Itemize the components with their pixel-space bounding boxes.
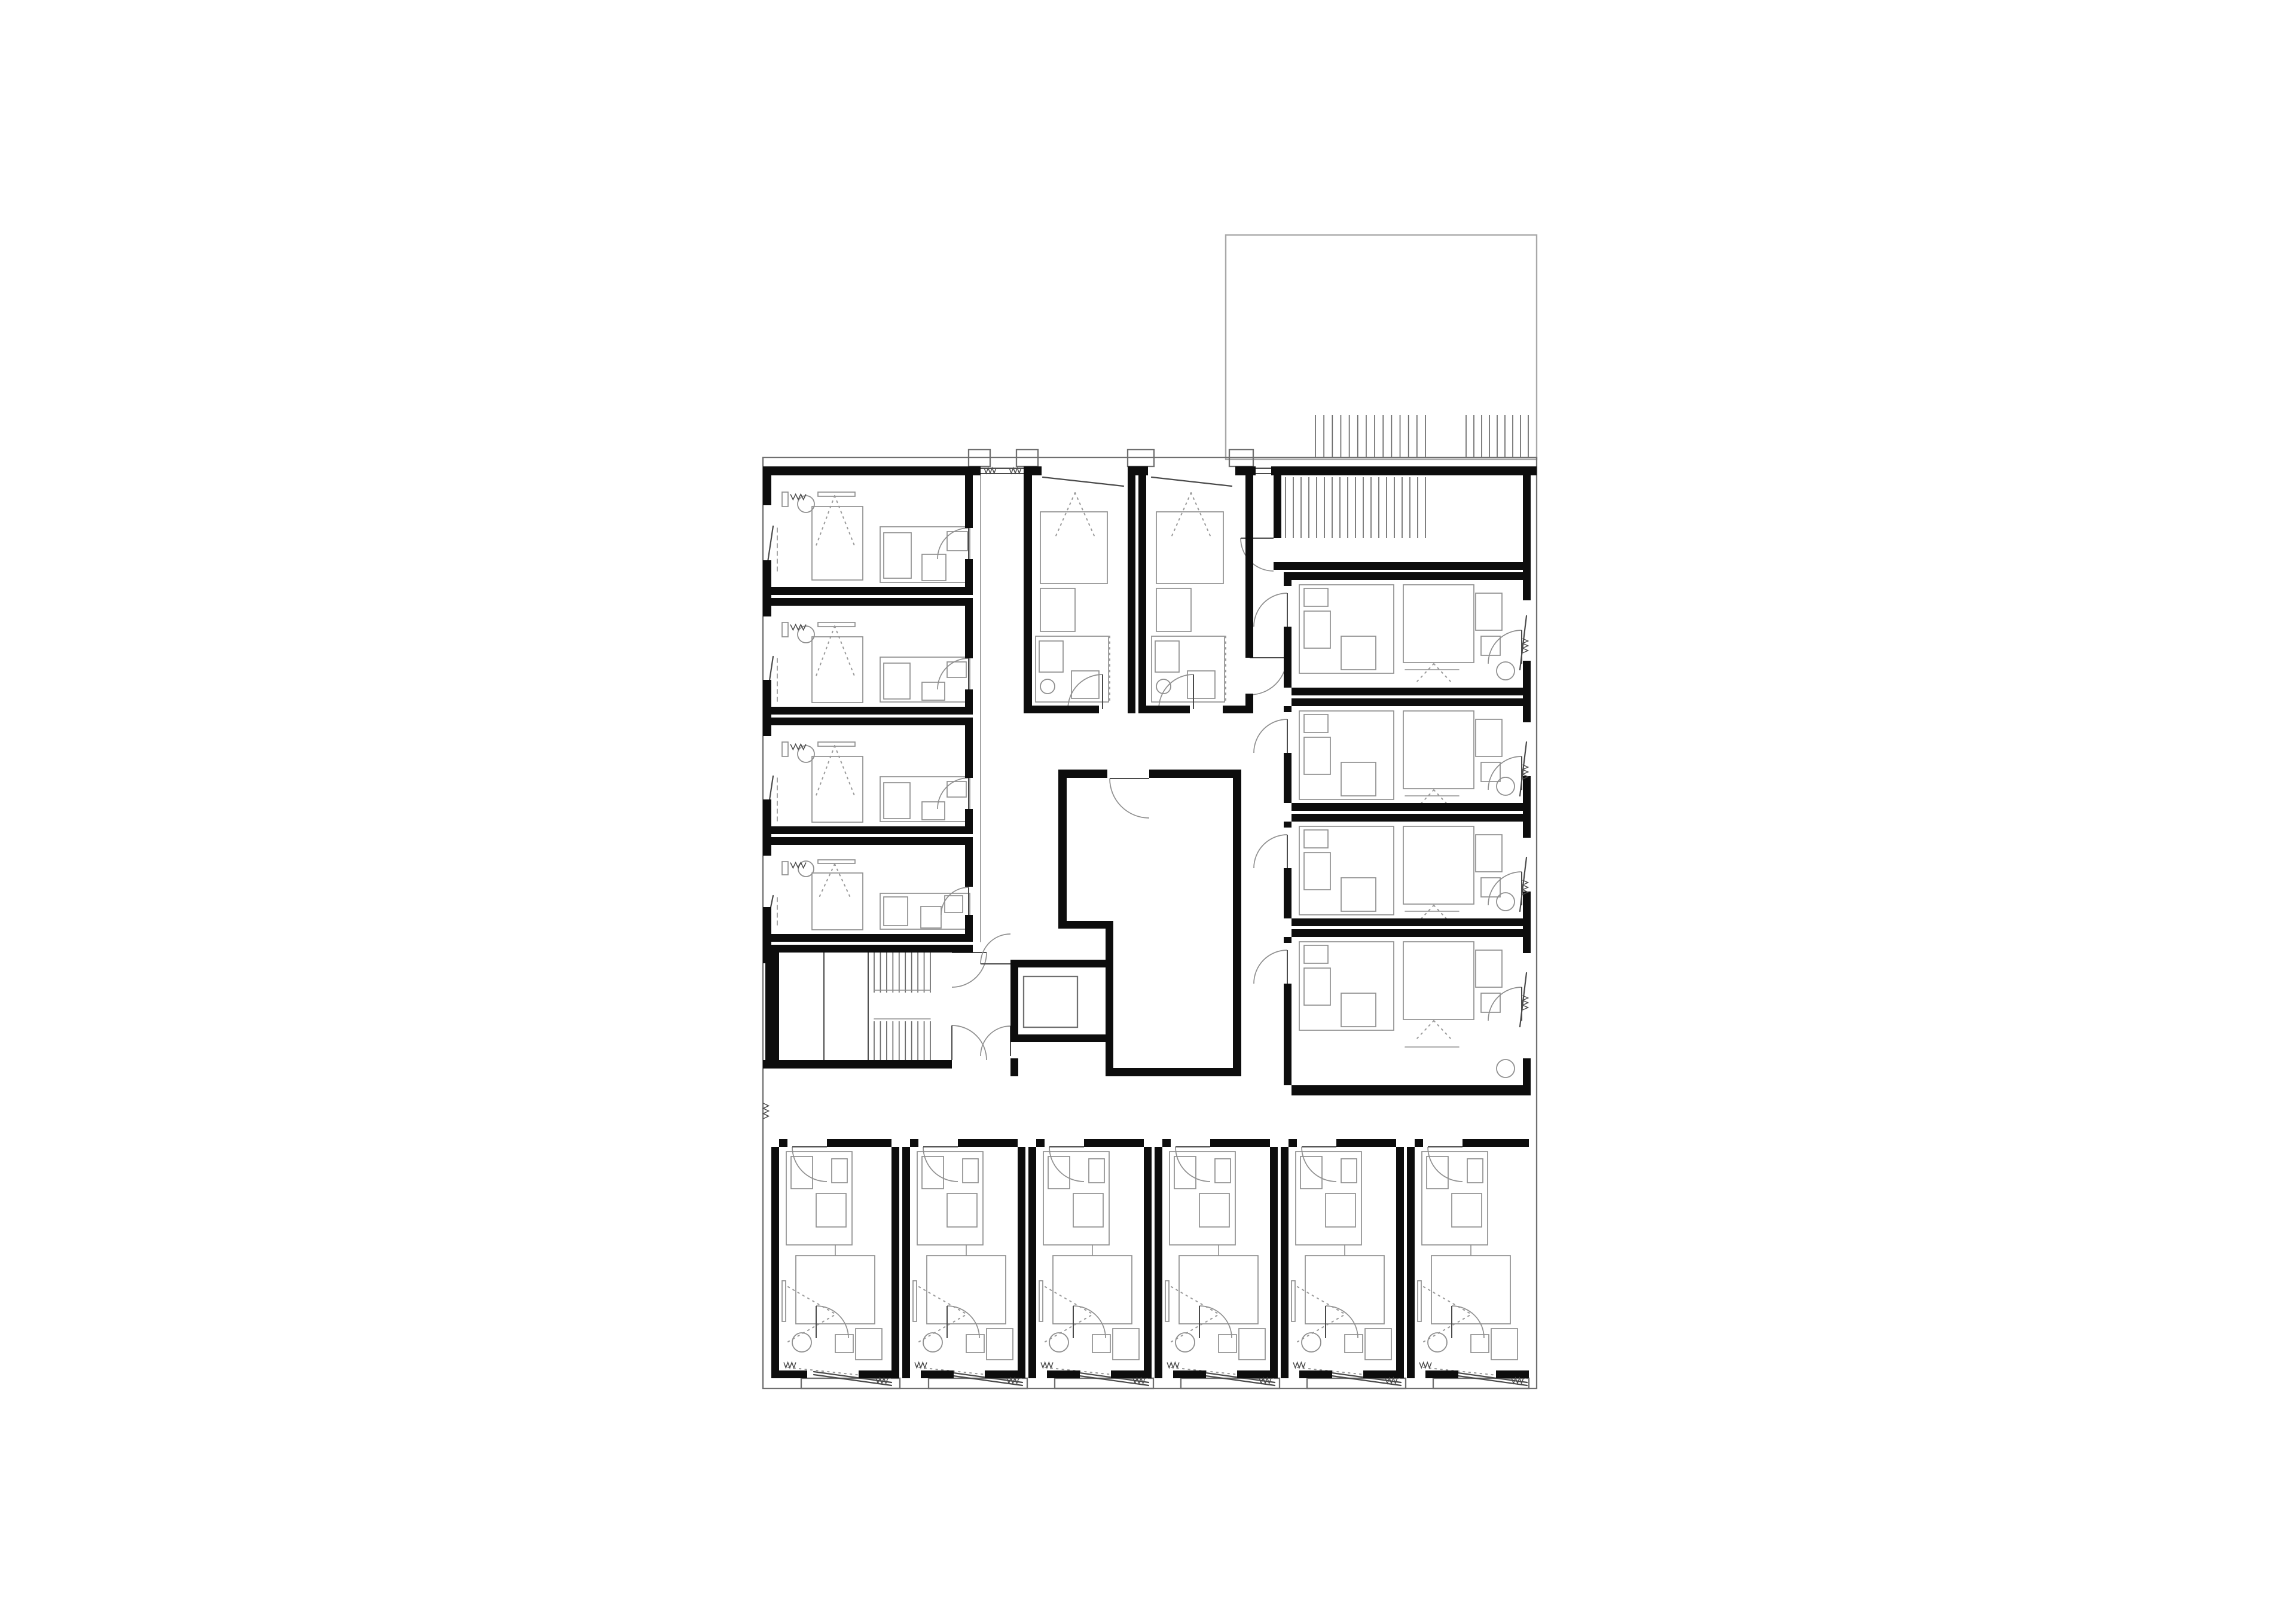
furniture-rect — [1048, 1156, 1070, 1189]
furniture-rect — [818, 622, 855, 627]
dotted-line — [788, 1287, 836, 1314]
wall-segment — [1523, 1058, 1531, 1095]
furniture-rect — [812, 506, 863, 580]
wall-segment — [763, 837, 973, 845]
furniture-rect — [1179, 1256, 1258, 1324]
furniture-rect — [818, 492, 855, 496]
wall-segment — [965, 475, 973, 528]
wall-segment — [763, 475, 771, 505]
furniture-rect — [782, 492, 788, 506]
dotted-line — [816, 626, 835, 677]
furniture-rect — [1467, 1159, 1483, 1183]
wall-segment — [921, 1370, 954, 1378]
furniture-rect — [796, 1256, 875, 1324]
insulation-squiggle — [764, 1103, 769, 1119]
furniture-rect — [922, 682, 945, 700]
furniture-rect — [963, 1159, 978, 1183]
furniture-rect — [1427, 1156, 1448, 1189]
wall-segment — [1291, 572, 1531, 580]
door-arc — [1488, 630, 1522, 664]
furniture-rect — [1174, 1156, 1196, 1189]
furniture-rect — [1345, 1335, 1363, 1353]
furniture-rect — [786, 1152, 852, 1245]
wall-segment — [965, 845, 973, 887]
door-arc — [1254, 719, 1287, 753]
dotted-line — [1415, 1021, 1434, 1041]
wall-segment — [1128, 475, 1135, 713]
furniture-rect — [927, 1256, 1006, 1324]
wall-segment — [1146, 706, 1190, 713]
furniture-rect — [1481, 878, 1500, 897]
furniture-rect — [782, 622, 788, 637]
dotted-line — [1045, 1314, 1093, 1342]
furniture-rect — [913, 1281, 917, 1321]
shell-outline — [1024, 976, 1077, 1027]
door-arc — [938, 658, 969, 689]
wall-segment — [763, 945, 973, 953]
furniture-rect — [1300, 1156, 1322, 1189]
wall-segment — [985, 1370, 1018, 1378]
furniture-rect — [1341, 878, 1376, 911]
furniture-rect — [1471, 1335, 1489, 1353]
furniture-rect — [1053, 1256, 1132, 1324]
dotted-line — [1075, 493, 1094, 536]
wall-segment — [1284, 753, 1291, 803]
wall-segment — [1024, 475, 1032, 713]
wall-segment — [1047, 1370, 1080, 1378]
wall-segment — [763, 587, 973, 595]
wall-segment — [1270, 1147, 1278, 1378]
wall-segment — [891, 1147, 899, 1378]
walls-layer — [763, 466, 1537, 1378]
furniture-rect — [1165, 1281, 1169, 1321]
wall-segment — [1291, 803, 1531, 811]
wall-segment — [763, 1060, 952, 1069]
wall-segment — [1233, 770, 1241, 1076]
sink-circle — [792, 1333, 811, 1352]
door-arc — [952, 1025, 987, 1060]
wall-segment — [1084, 1139, 1144, 1147]
furniture-rect — [1304, 611, 1330, 648]
wall-segment — [1162, 1139, 1171, 1147]
door-arc — [1199, 1306, 1232, 1338]
wall-segment — [1010, 960, 1109, 967]
furniture-rect — [1431, 1256, 1510, 1324]
wall-segment — [1284, 572, 1291, 586]
furniture-rect — [1039, 641, 1063, 672]
wall-segment — [965, 809, 973, 826]
wall-segment — [1128, 466, 1148, 475]
furniture-rect — [835, 1335, 853, 1353]
dotted-line — [919, 1314, 967, 1342]
sink-circle — [1497, 893, 1515, 911]
wall-segment — [859, 1370, 891, 1378]
wall-segment — [1271, 466, 1537, 475]
wall-segment — [1523, 661, 1531, 722]
furniture-rect — [880, 893, 970, 929]
furniture-rect — [1156, 588, 1191, 631]
furniture-rect — [1305, 1256, 1384, 1324]
furniture-rect — [884, 533, 911, 578]
wall-segment — [1363, 1370, 1396, 1378]
wall-segment — [1523, 892, 1531, 953]
wall-segment — [1111, 1370, 1144, 1378]
furniture-rect — [1341, 993, 1376, 1027]
window-glazing-line — [1152, 477, 1232, 486]
dotted-line — [788, 1314, 836, 1342]
wall-segment — [1018, 1147, 1025, 1378]
wall-segment — [1237, 1370, 1270, 1378]
wall-segment — [1396, 1147, 1404, 1378]
door-arc — [1254, 835, 1287, 868]
furniture-rect — [818, 742, 855, 746]
furniture-rect — [1040, 588, 1075, 631]
wall-segment — [1284, 937, 1291, 943]
wall-segment — [763, 934, 973, 942]
wall-segment — [1245, 475, 1253, 658]
floor-plan-page — [0, 0, 2296, 1624]
wall-segment — [1173, 1370, 1206, 1378]
wall-segment — [765, 953, 779, 1060]
wall-segment — [763, 707, 973, 715]
furniture-rect — [966, 1335, 984, 1353]
door-arc — [1488, 872, 1522, 905]
furniture-rect — [1155, 641, 1179, 672]
furniture-rect — [816, 1193, 846, 1227]
wall-segment — [1155, 1147, 1162, 1378]
insulation-squiggle — [1167, 1363, 1179, 1368]
furniture-rect — [782, 862, 788, 875]
furniture-rect — [1341, 1159, 1357, 1183]
wall-segment — [1291, 814, 1531, 822]
door-arc — [938, 778, 969, 809]
sink-circle — [1428, 1333, 1447, 1352]
wall-segment — [958, 1139, 1018, 1147]
wall-segment — [763, 826, 973, 834]
sink-circle — [923, 1333, 942, 1352]
sink-circle — [1302, 1333, 1321, 1352]
wall-segment — [1223, 706, 1245, 713]
furniture-rect — [1481, 993, 1500, 1012]
wall-segment — [1106, 921, 1113, 1076]
wall-segment — [779, 1139, 787, 1147]
dotted-line — [816, 496, 835, 547]
furniture-rect — [1219, 1335, 1236, 1353]
furniture-rect — [1476, 835, 1502, 872]
wall-segment — [763, 466, 981, 475]
door-arc — [981, 934, 1010, 964]
wall-segment — [1010, 1034, 1109, 1042]
furniture-rect — [1403, 585, 1474, 663]
furniture-rect — [1341, 762, 1376, 796]
wall-segment — [1523, 776, 1531, 838]
wall-segment — [1024, 466, 1042, 475]
furniture-rect — [1299, 711, 1394, 799]
wall-segment — [771, 1370, 807, 1378]
door-arc — [1326, 1306, 1358, 1338]
furniture-rect — [1304, 853, 1330, 890]
door-arc — [1254, 593, 1287, 627]
furniture-rect — [1304, 737, 1330, 774]
furniture-rect — [1170, 1152, 1235, 1245]
dotted-line — [1434, 664, 1453, 684]
furniture-rect — [917, 1152, 983, 1245]
furniture-rect — [1481, 636, 1500, 655]
furniture-rect — [922, 1156, 944, 1189]
door-arc — [1073, 1306, 1106, 1338]
wall-segment — [965, 606, 973, 658]
furniture-rect — [782, 1281, 786, 1321]
wall-segment — [1281, 1147, 1289, 1378]
dotted-line — [818, 864, 835, 900]
furniture-rect — [1422, 1152, 1488, 1245]
dotted-line — [1172, 493, 1191, 536]
wall-segment — [902, 1147, 910, 1378]
furniture-rect — [1089, 1159, 1104, 1183]
furniture-rect — [1039, 1281, 1043, 1321]
furniture-rect — [1152, 636, 1225, 702]
furniture-rect — [856, 1329, 882, 1360]
sink-circle — [1040, 679, 1055, 694]
furniture-rect — [1476, 593, 1502, 630]
furniture-rect — [1476, 719, 1502, 756]
furniture-rect — [947, 1193, 977, 1227]
furniture-rect — [812, 873, 863, 930]
furniture-rect — [1304, 968, 1330, 1005]
door-arc — [1250, 658, 1287, 695]
wall-segment — [1284, 706, 1291, 712]
wall-segment — [1415, 1139, 1423, 1147]
wall-segment — [1149, 770, 1241, 778]
furniture-rect — [884, 663, 910, 699]
wall-segment — [1289, 1139, 1297, 1147]
furniture-rect — [1403, 711, 1474, 789]
wall-segment — [1291, 688, 1531, 695]
wall-segment — [1036, 1139, 1045, 1147]
furniture-rect — [945, 896, 963, 912]
wall-segment — [965, 559, 973, 587]
insulation-squiggle — [1293, 1363, 1305, 1368]
furniture-rect — [884, 897, 908, 926]
sink-circle — [798, 746, 814, 762]
furniture-rect — [782, 742, 788, 756]
wall-segment — [1274, 475, 1281, 538]
furniture-rect — [1452, 1193, 1482, 1227]
furniture-rect — [791, 1156, 813, 1189]
wall-segment — [1425, 1370, 1458, 1378]
wall-segment — [1291, 1085, 1531, 1095]
insulation-squiggle — [915, 1363, 927, 1368]
dotted-line — [1424, 1287, 1471, 1314]
wall-segment — [771, 1147, 779, 1378]
furniture-rect — [1304, 715, 1328, 732]
wall-segment — [965, 725, 973, 778]
dotted-line — [1297, 1314, 1345, 1342]
dotted-line — [1415, 664, 1434, 684]
sink-circle — [1497, 1060, 1515, 1077]
furniture-rect — [832, 1159, 847, 1183]
wall-segment — [763, 718, 973, 725]
dotted-line — [1297, 1287, 1345, 1314]
wall-segment — [1291, 918, 1531, 926]
furniture-rect — [1476, 950, 1502, 987]
wall-segment — [827, 1139, 891, 1147]
wall-segment — [1284, 822, 1291, 828]
furniture-rect — [1418, 1281, 1421, 1321]
wall-segment — [1284, 984, 1291, 1085]
wall-segment — [1144, 1147, 1152, 1378]
door-arc — [1110, 779, 1149, 818]
dotted-line — [816, 746, 835, 797]
furniture-rect — [880, 657, 970, 702]
wall-segment — [1010, 1058, 1018, 1076]
dotted-line — [835, 864, 851, 900]
dotted-line — [1424, 1314, 1471, 1342]
wall-segment — [763, 598, 973, 606]
insulation-squiggle — [1419, 1363, 1431, 1368]
door-arc — [816, 1306, 848, 1338]
furniture-rect — [1491, 1329, 1518, 1360]
wall-segment — [1058, 770, 1067, 929]
furniture-rect — [1215, 1159, 1231, 1183]
wall-segment — [1299, 1370, 1332, 1378]
wall-segment — [1058, 921, 1113, 929]
door-arc — [1488, 756, 1522, 790]
dotted-line — [1056, 493, 1075, 536]
floor-plan-svg — [0, 0, 2296, 1624]
door-arc — [1488, 987, 1522, 1021]
furniture-rect — [1304, 830, 1328, 848]
furniture-rect — [884, 783, 910, 819]
door-arc — [1068, 674, 1103, 709]
sink-circle — [798, 496, 814, 512]
furniture-rect — [1304, 588, 1328, 606]
sink-circle — [1176, 1333, 1195, 1352]
wall-segment — [1028, 1147, 1036, 1378]
door-arc — [1452, 1306, 1484, 1338]
wall-segment — [1463, 1139, 1529, 1147]
furniture-rect — [987, 1329, 1013, 1360]
furniture-rect — [1341, 636, 1376, 670]
furniture-rect — [1156, 512, 1223, 584]
furniture-rect — [818, 860, 855, 863]
wall-segment — [1235, 466, 1256, 475]
wall-segment — [1407, 1147, 1415, 1378]
wall-segment — [1496, 1370, 1529, 1378]
door-arc — [947, 1306, 979, 1338]
dotted-line — [835, 496, 855, 547]
door-arc — [941, 887, 969, 915]
furniture-rect — [1365, 1329, 1391, 1360]
dotted-line — [1171, 1287, 1219, 1314]
furniture-rect — [1113, 1329, 1139, 1360]
insulation-squiggle — [790, 494, 806, 500]
dotted-line — [1045, 1287, 1093, 1314]
door-arc — [1254, 950, 1287, 984]
dotted-line — [1191, 493, 1210, 536]
wall-segment — [1274, 562, 1531, 570]
wall-segment — [1291, 698, 1531, 706]
insulation-squiggle — [790, 625, 806, 630]
wall-segment — [1291, 929, 1531, 937]
wall-segment — [965, 689, 973, 707]
wall-segment — [1138, 475, 1146, 713]
wall-segment — [1210, 1139, 1270, 1147]
furniture-rect — [1199, 1193, 1229, 1227]
furniture-rect — [1326, 1193, 1355, 1227]
dotted-line — [1434, 1021, 1453, 1041]
wall-segment — [1024, 706, 1099, 713]
furniture-rect — [922, 554, 946, 581]
sink-circle — [798, 626, 814, 643]
insulation-squiggle — [790, 863, 806, 868]
dotted-line — [835, 746, 855, 797]
furniture-rect — [1304, 945, 1328, 963]
sink-circle — [1497, 662, 1515, 680]
wall-segment — [910, 1139, 918, 1147]
furniture-rect — [922, 802, 945, 820]
terrace-outline — [1226, 235, 1537, 459]
furniture-rect — [1403, 942, 1474, 1019]
furniture-rect — [921, 906, 941, 928]
furniture-rect — [1299, 585, 1394, 673]
wall-segment — [1113, 1068, 1241, 1076]
furniture-rect — [812, 637, 863, 703]
wall-segment — [1245, 694, 1253, 713]
insulation-squiggle — [784, 1363, 796, 1368]
furniture-rect — [1043, 1152, 1109, 1245]
terrace-layer — [1226, 235, 1537, 459]
insulation-squiggle — [1041, 1363, 1053, 1368]
wall-segment — [965, 915, 973, 934]
wall-segment — [1523, 544, 1531, 600]
furniture-rect — [1481, 762, 1500, 782]
wall-segment — [1336, 1139, 1396, 1147]
furniture-rect — [1299, 942, 1394, 1030]
furniture-rect — [1403, 826, 1474, 904]
dotted-line — [835, 626, 855, 677]
furniture-rect — [1291, 1281, 1295, 1321]
insulation-squiggle — [790, 744, 806, 750]
furniture-rect — [880, 777, 970, 822]
sink-circle — [1497, 777, 1515, 795]
furniture-rect — [1296, 1152, 1361, 1245]
furniture-rect — [1073, 1193, 1103, 1227]
furniture-rect — [1299, 826, 1394, 915]
furniture-rect — [1040, 512, 1107, 584]
furniture-rect — [1239, 1329, 1265, 1360]
wall-segment — [1010, 960, 1018, 1042]
furniture-rect — [812, 756, 863, 822]
wall-segment — [1284, 868, 1291, 918]
wall-segment — [1284, 627, 1291, 688]
sink-circle — [1049, 1333, 1068, 1352]
window-glazing-line — [1043, 477, 1123, 486]
furniture-rect — [1092, 1335, 1110, 1353]
dotted-line — [919, 1287, 967, 1314]
dotted-line — [1171, 1314, 1219, 1342]
